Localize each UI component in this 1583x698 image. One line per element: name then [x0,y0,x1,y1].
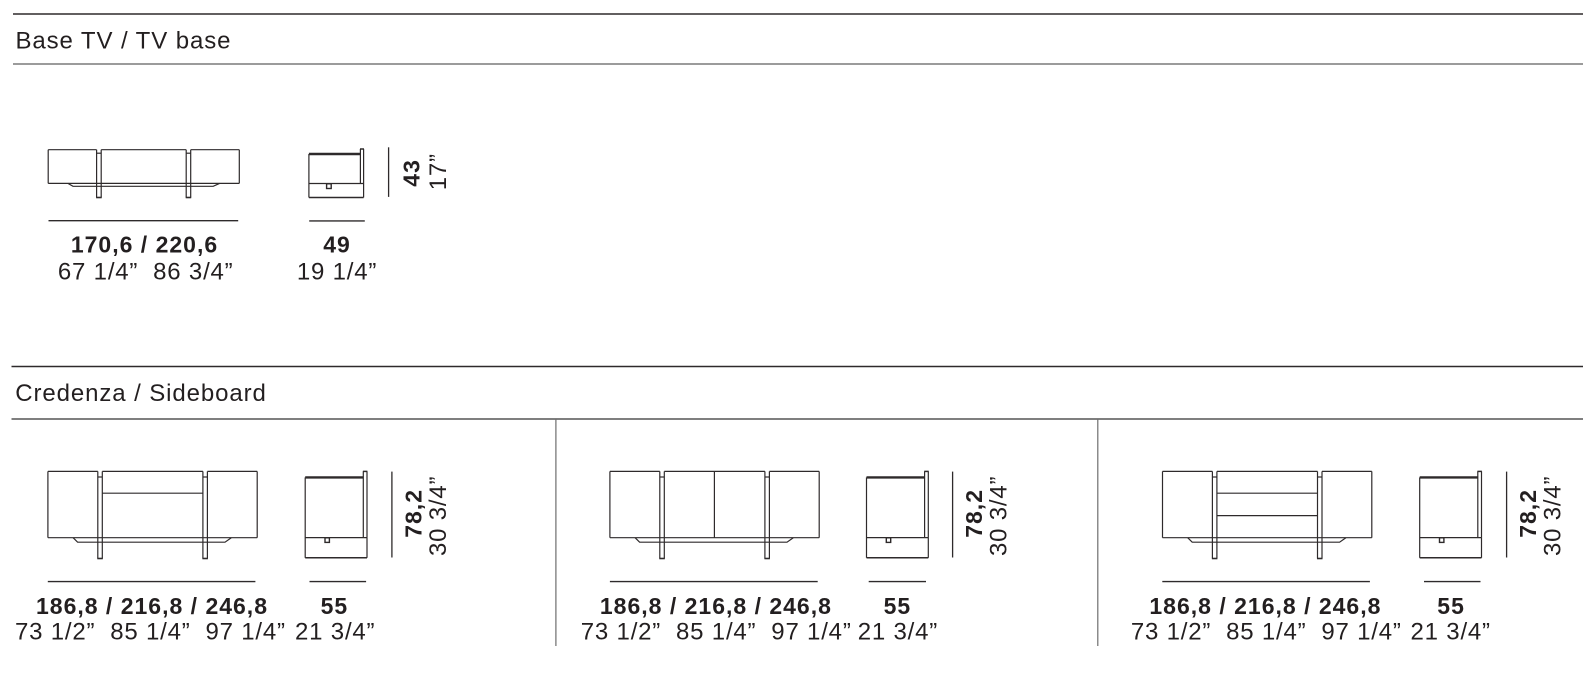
svg-text:78,2: 78,2 [400,489,426,538]
svg-text:55: 55 [1437,593,1465,619]
svg-text:30 3/4”: 30 3/4” [986,476,1013,556]
svg-text:186,8 / 216,8 / 246,8: 186,8 / 216,8 / 246,8 [1149,593,1381,619]
svg-text:17”: 17” [425,153,452,190]
svg-text:49: 49 [323,232,351,258]
svg-text:170,6 / 220,6: 170,6 / 220,6 [71,232,218,258]
svg-text:67 1/4” 86 3/4”: 67 1/4” 86 3/4” [58,259,234,286]
svg-text:21 3/4”: 21 3/4” [295,619,375,646]
svg-text:21 3/4”: 21 3/4” [858,619,938,646]
svg-text:78,2: 78,2 [1515,489,1541,538]
svg-text:30 3/4”: 30 3/4” [1540,476,1567,556]
svg-text:73 1/2” 85 1/4” 97 1/4”: 73 1/2” 85 1/4” 97 1/4” [581,619,852,646]
svg-text:186,8 / 216,8 / 246,8: 186,8 / 216,8 / 246,8 [36,593,268,619]
svg-text:78,2: 78,2 [961,489,987,538]
svg-text:19 1/4”: 19 1/4” [297,259,377,286]
svg-text:55: 55 [321,593,349,619]
svg-text:30 3/4”: 30 3/4” [425,476,452,556]
svg-text:Base TV / TV base: Base TV / TV base [16,28,232,55]
svg-text:73 1/2” 85 1/4” 97 1/4”: 73 1/2” 85 1/4” 97 1/4” [15,619,286,646]
svg-text:43: 43 [399,159,425,187]
svg-text:21 3/4”: 21 3/4” [1411,619,1491,646]
svg-text:Credenza / Sideboard: Credenza / Sideboard [15,380,266,407]
svg-text:55: 55 [884,593,912,619]
svg-text:73 1/2” 85 1/4” 97 1/4”: 73 1/2” 85 1/4” 97 1/4” [1131,619,1402,646]
svg-text:186,8 / 216,8 / 246,8: 186,8 / 216,8 / 246,8 [600,593,832,619]
